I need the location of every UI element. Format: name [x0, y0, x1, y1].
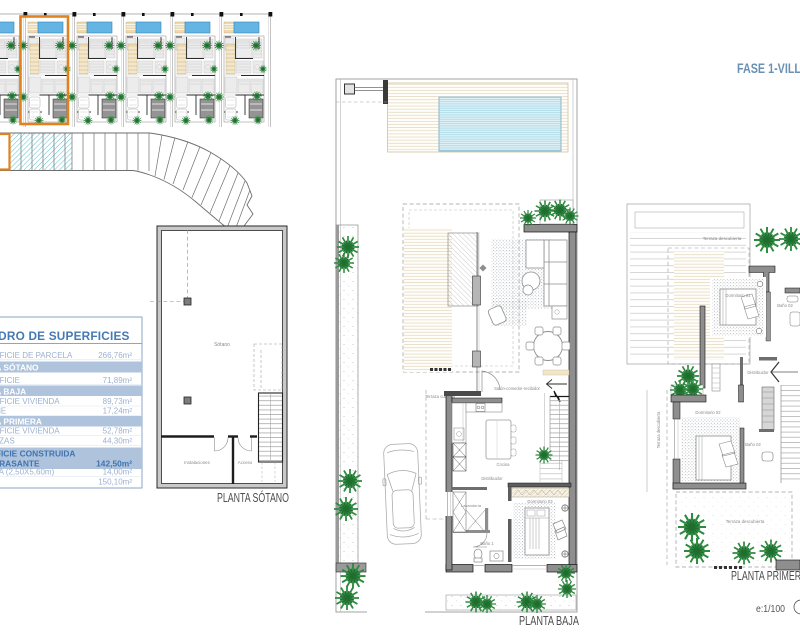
- svg-text:PLANTA SÓTANO: PLANTA SÓTANO: [0, 362, 39, 373]
- svg-text:SUPERFICIE VIVIENDA: SUPERFICIE VIVIENDA: [0, 397, 60, 406]
- svg-text:e:1/100: e:1/100: [756, 603, 785, 615]
- svg-text:TERRAZAS: TERRAZAS: [0, 437, 15, 446]
- svg-text:Baño 02: Baño 02: [745, 442, 761, 447]
- svg-text:FASE 1-VILL: FASE 1-VILL: [737, 61, 800, 76]
- svg-text:Salón-comedor-recibidor: Salón-comedor-recibidor: [494, 386, 540, 391]
- svg-text:142,50m²: 142,50m²: [96, 459, 132, 469]
- svg-text:Baño 1: Baño 1: [480, 541, 494, 546]
- svg-text:44,30m²: 44,30m²: [103, 437, 133, 446]
- svg-text:CUADRO DE SUPERFICIES: CUADRO DE SUPERFICIES: [0, 329, 130, 343]
- svg-text:Dormitorio 01: Dormitorio 01: [725, 293, 751, 298]
- svg-text:PLANTA PRIMERA: PLANTA PRIMERA: [0, 417, 42, 427]
- svg-text:PORCHE: PORCHE: [0, 407, 6, 416]
- svg-text:Baño 02: Baño 02: [777, 303, 793, 308]
- svg-text:SUPERFICIE: SUPERFICIE: [0, 376, 20, 385]
- svg-text:266,76m²: 266,76m²: [98, 351, 132, 360]
- svg-text:Cocina: Cocina: [496, 462, 510, 467]
- svg-text:PLANTA PRIMERA: PLANTA PRIMERA: [731, 568, 800, 583]
- svg-text:PLANTA BAJA: PLANTA BAJA: [0, 387, 26, 397]
- svg-text:89,73m²: 89,73m²: [103, 397, 133, 406]
- svg-text:Terraza descubierta: Terraza descubierta: [726, 519, 765, 524]
- svg-text:PLANTA SÓTANO: PLANTA SÓTANO: [217, 490, 289, 505]
- svg-text:Terraza descubierta: Terraza descubierta: [656, 411, 661, 448]
- svg-text:Distribuidor: Distribuidor: [481, 476, 503, 481]
- svg-text:SOBRE RASANTE: SOBRE RASANTE: [0, 459, 40, 469]
- svg-text:52,78m²: 52,78m²: [103, 427, 133, 436]
- svg-text:14,00m²: 14,00m²: [103, 468, 133, 477]
- svg-text:Instalaciones: Instalaciones: [184, 460, 210, 465]
- svg-text:Acceso: Acceso: [238, 460, 253, 465]
- svg-text:17,24m²: 17,24m²: [103, 407, 133, 416]
- svg-text:Distribuidor: Distribuidor: [747, 370, 769, 375]
- svg-text:150,10m²: 150,10m²: [98, 478, 132, 487]
- svg-text:SUPERFICIE CONSTRUIDA: SUPERFICIE CONSTRUIDA: [0, 449, 75, 459]
- svg-text:SUPERFICIE DE PARCELA: SUPERFICIE DE PARCELA: [0, 351, 73, 360]
- svg-text:Terraza descubierta: Terraza descubierta: [703, 236, 742, 241]
- svg-text:SUPERFICIE VIVIENDA: SUPERFICIE VIVIENDA: [0, 427, 60, 436]
- svg-text:Sótano: Sótano: [214, 342, 230, 348]
- svg-text:71,89m²: 71,89m²: [103, 376, 133, 385]
- svg-text:PLANTA BAJA: PLANTA BAJA: [519, 613, 579, 628]
- svg-text:Lavandería: Lavandería: [461, 503, 482, 508]
- svg-text:PISCINA (2,50X5,60m): PISCINA (2,50X5,60m): [0, 468, 55, 477]
- svg-text:Dormitorio 02: Dormitorio 02: [695, 410, 721, 415]
